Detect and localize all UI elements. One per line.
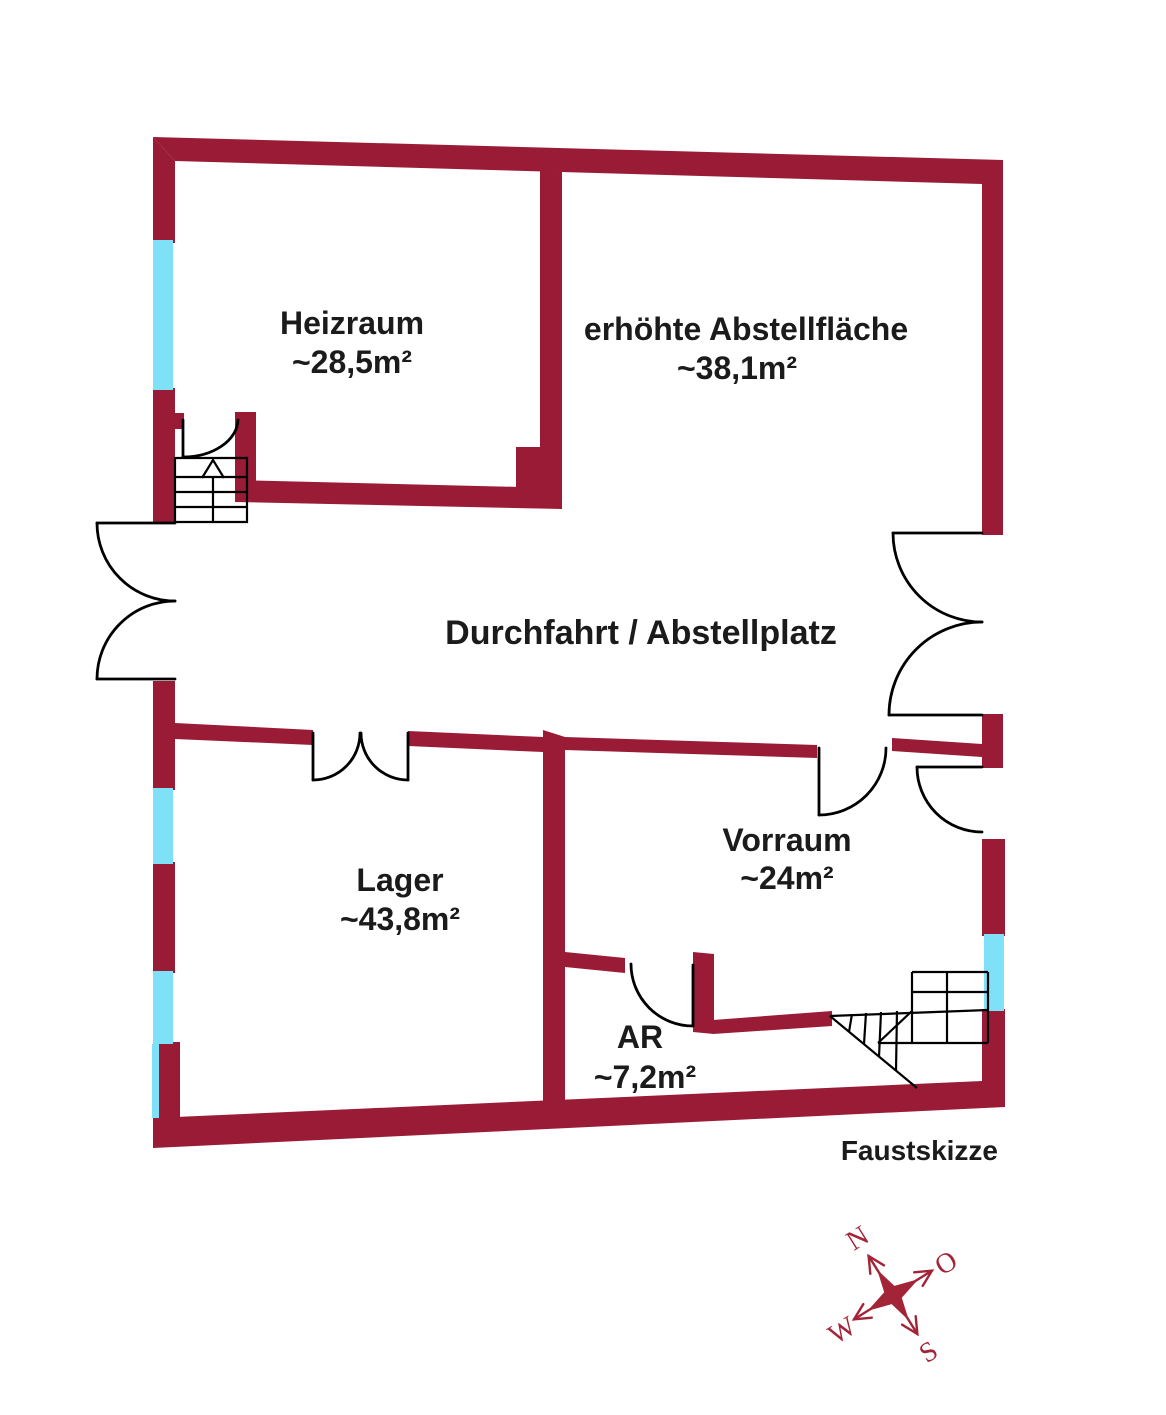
room-area-vorraum: ~24m²	[740, 860, 833, 896]
stairs-cut-line	[830, 1016, 917, 1088]
wall-vorraum-top-left	[565, 737, 817, 758]
wall-ar-top	[565, 952, 625, 973]
windows	[152, 240, 1004, 1118]
wall-right-block-vorraum	[982, 714, 1003, 768]
room-label-vorraum: Vorraum	[722, 822, 851, 858]
room-area-abstellflaeche: ~38,1m²	[677, 350, 797, 386]
room-label-abstellflaeche: erhöhte Abstellfläche	[584, 311, 908, 347]
wall-left-lower-a	[153, 681, 175, 790]
door-swing-vorraum-right	[917, 767, 982, 832]
room-label-durchfahrt: Durchfahrt / Abstellplatz	[445, 614, 837, 652]
room-area-heizraum: ~28,5m²	[292, 344, 412, 380]
wall-right-lower-b	[982, 1009, 1005, 1100]
wall-divider-upper	[540, 170, 562, 506]
room-label-lager: Lager	[356, 862, 443, 898]
doors	[97, 420, 982, 1026]
wall-vorraum-top-right	[892, 738, 982, 757]
wall-lager-top-left	[175, 723, 313, 745]
wall-left-upper-b	[153, 388, 175, 523]
door-swing-heizraum	[183, 420, 238, 457]
room-labels: Heizraum ~28,5m² erhöhte Abstellfläche ~…	[280, 305, 908, 1095]
wall-lager-top-right	[408, 731, 543, 752]
wall-ar-stub	[693, 952, 714, 1034]
door-swing-vorraum-entry	[819, 748, 886, 815]
wall-heizraum-bottom	[235, 480, 562, 509]
wall-right-lower-a	[982, 839, 1005, 936]
room-label-ar: AR	[617, 1019, 663, 1055]
room-area-lager: ~43,8m²	[340, 901, 460, 937]
floorplan-page: Heizraum ~28,5m² erhöhte Abstellfläche ~…	[0, 0, 1166, 1415]
window-marker-left-mid	[153, 788, 173, 864]
wall-divider-lower	[543, 730, 565, 1108]
window-marker-left-corner	[152, 1044, 159, 1118]
room-area-ar: ~7,2m²	[594, 1059, 696, 1095]
floorplan-sketch: Heizraum ~28,5m² erhöhte Abstellfläche ~…	[0, 0, 1166, 1415]
door-swing-lager	[313, 733, 408, 780]
sketch-title: Faustskizze	[841, 1135, 998, 1166]
door-swing-entrance-east	[889, 533, 982, 715]
door-swing-entrance-west	[97, 523, 175, 679]
wall-chimney-bump	[516, 447, 543, 490]
compass-star-icon	[852, 1254, 935, 1337]
compass-letter-north: N	[841, 1220, 875, 1257]
compass-rose: N O S W	[786, 1187, 998, 1405]
door-swing-ar	[631, 964, 693, 1026]
window-marker-left-upper	[153, 240, 173, 390]
stairs-direction-arrow	[202, 460, 224, 478]
room-label-heizraum: Heizraum	[280, 305, 424, 341]
compass-letter-east: O	[930, 1245, 964, 1282]
wall-ar-bottom-right	[713, 1011, 832, 1034]
wall-left-lower-b	[153, 862, 175, 973]
compass-letter-south: S	[914, 1335, 944, 1370]
window-marker-left-low	[153, 971, 173, 1044]
stairs-lower	[830, 972, 988, 1088]
